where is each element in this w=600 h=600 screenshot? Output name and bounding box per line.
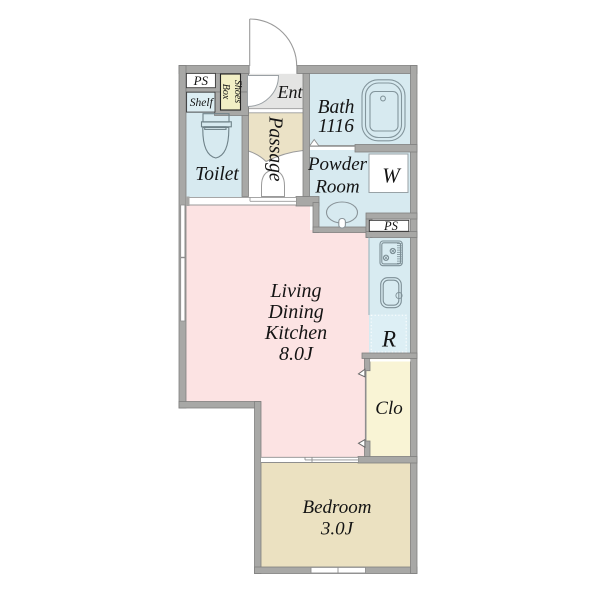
svg-text:W: W [382, 164, 402, 188]
svg-text:PS: PS [383, 219, 399, 233]
svg-text:1116: 1116 [318, 116, 354, 137]
svg-text:Living: Living [269, 280, 321, 302]
svg-text:Ent: Ent [277, 82, 304, 102]
svg-text:Bedroom: Bedroom [303, 497, 372, 518]
svg-text:Passage: Passage [265, 116, 286, 182]
svg-text:Kitchen: Kitchen [264, 322, 327, 344]
svg-text:R: R [381, 327, 396, 352]
svg-text:Room: Room [314, 177, 359, 198]
svg-text:Dining: Dining [267, 301, 324, 323]
svg-text:Toilet: Toilet [195, 164, 239, 185]
svg-text:Clo: Clo [375, 398, 402, 419]
svg-text:Shoes: Shoes [232, 80, 243, 103]
svg-text:3.0J: 3.0J [320, 519, 355, 540]
svg-text:Shelf: Shelf [190, 97, 215, 109]
svg-text:PS: PS [193, 73, 209, 88]
svg-text:Bath: Bath [318, 97, 355, 118]
svg-text:Box: Box [220, 84, 231, 100]
svg-text:8.0J: 8.0J [279, 343, 314, 365]
svg-text:Powder: Powder [307, 154, 368, 175]
